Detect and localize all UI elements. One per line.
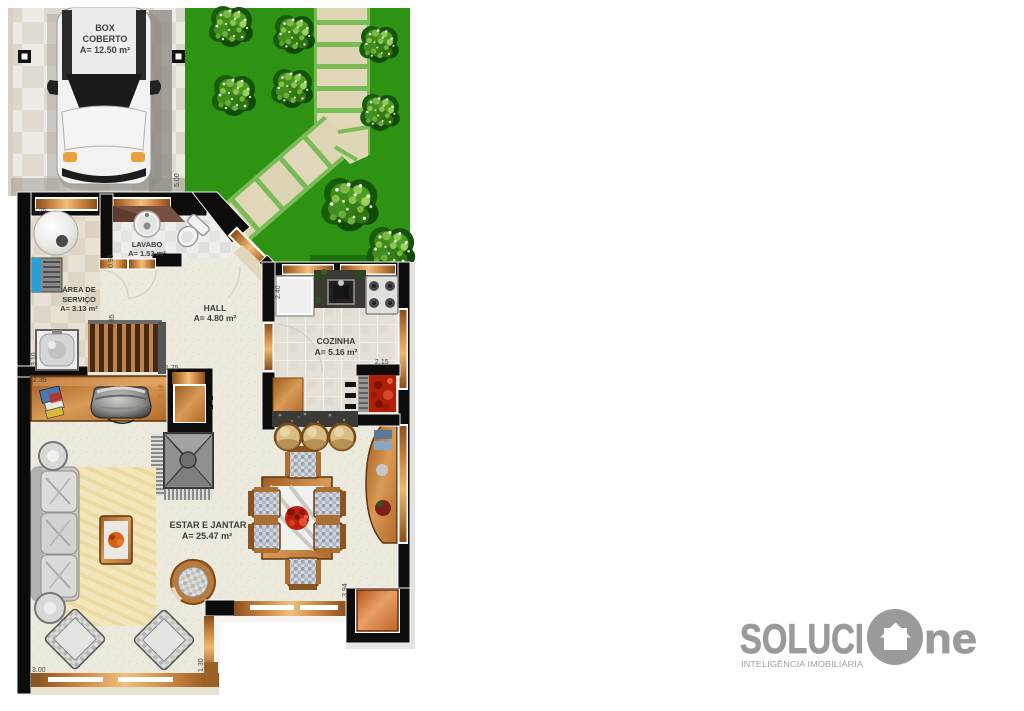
svg-text:SOLUCI: SOLUCI xyxy=(740,615,864,662)
svg-text:BOX: BOX xyxy=(95,23,115,33)
svg-text:3.00: 3.00 xyxy=(32,667,46,674)
svg-text:HALL: HALL xyxy=(204,303,227,313)
svg-text:5.18: 5.18 xyxy=(158,384,165,398)
svg-text:A= 25.47 m²: A= 25.47 m² xyxy=(182,531,232,541)
svg-text:SERVIÇO: SERVIÇO xyxy=(62,295,96,304)
svg-text:3.10: 3.10 xyxy=(31,352,38,366)
svg-text:INTELIGÊNCIA IMOBILIÁRIA: INTELIGÊNCIA IMOBILIÁRIA xyxy=(741,659,863,669)
svg-text:A= 12.50 m²: A= 12.50 m² xyxy=(80,45,130,55)
svg-text:A= 3.13 m²: A= 3.13 m² xyxy=(60,304,98,313)
svg-text:ESTAR E JANTAR: ESTAR E JANTAR xyxy=(170,520,247,530)
svg-text:COZINHA: COZINHA xyxy=(317,336,356,346)
svg-text:2.40: 2.40 xyxy=(275,285,282,299)
svg-text:ÁREA DE: ÁREA DE xyxy=(62,285,95,294)
svg-text:ne: ne xyxy=(924,615,977,662)
svg-text:0.95: 0.95 xyxy=(108,254,115,268)
svg-text:0.95: 0.95 xyxy=(109,314,116,328)
svg-text:LAVABO: LAVABO xyxy=(132,240,163,249)
svg-text:A= 5.16 m²: A= 5.16 m² xyxy=(315,347,358,357)
svg-text:A= 4.80 m²: A= 4.80 m² xyxy=(194,313,237,323)
svg-text:3.94: 3.94 xyxy=(342,583,349,597)
svg-text:A= 1.53 m²: A= 1.53 m² xyxy=(128,249,166,258)
svg-text:2.15: 2.15 xyxy=(375,359,389,366)
svg-text:2.35: 2.35 xyxy=(33,377,47,384)
svg-text:5.00: 5.00 xyxy=(174,173,181,187)
svg-text:COBERTO: COBERTO xyxy=(83,34,128,44)
svg-text:1.75: 1.75 xyxy=(165,365,179,372)
svg-text:1.25: 1.25 xyxy=(33,208,47,215)
svg-text:1.30: 1.30 xyxy=(198,658,205,672)
